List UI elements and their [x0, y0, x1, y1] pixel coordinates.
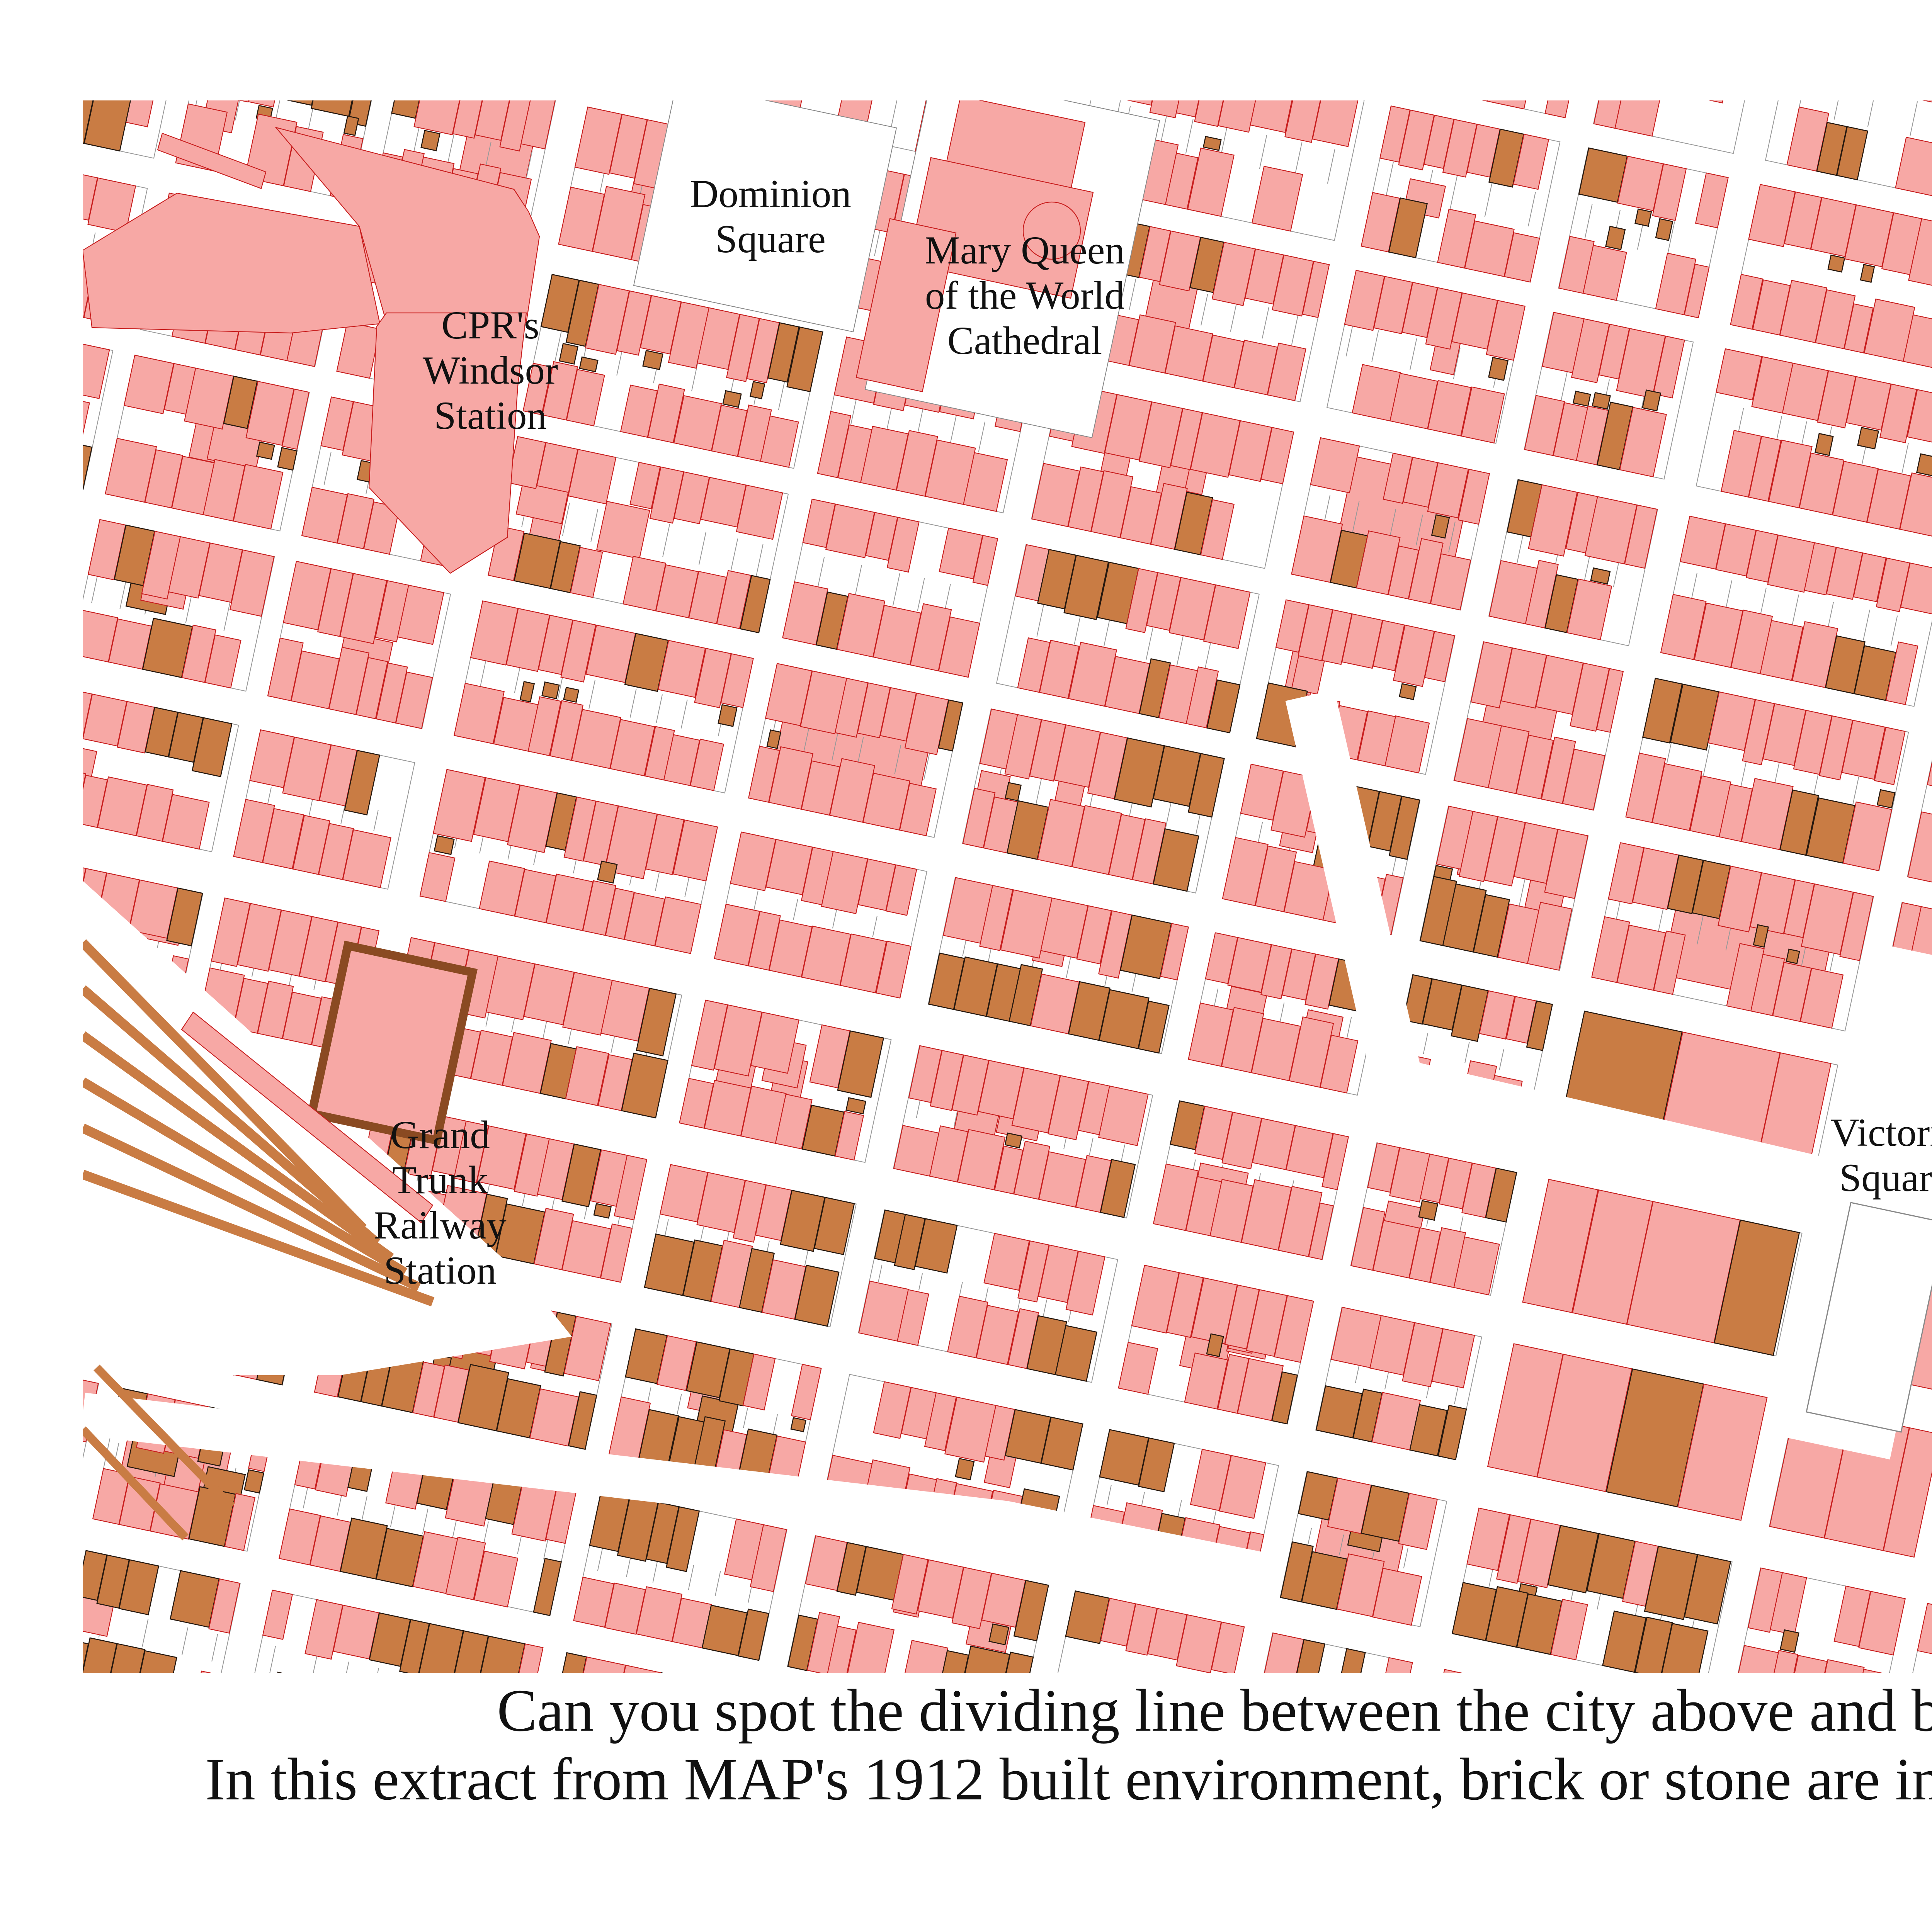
svg-text:Dominion: Dominion — [690, 172, 851, 216]
svg-text:Station: Station — [434, 394, 547, 438]
svg-text:of the World: of the World — [925, 274, 1124, 318]
svg-text:Can you spot the dividing line: Can you spot the dividing line between t… — [497, 1677, 1932, 1744]
svg-text:Station: Station — [384, 1249, 497, 1293]
svg-text:Cathedral: Cathedral — [947, 319, 1102, 363]
svg-text:Trunk: Trunk — [392, 1158, 488, 1202]
svg-text:Windsor: Windsor — [423, 348, 558, 392]
svg-text:Railway: Railway — [374, 1203, 507, 1247]
svg-text:CPR's: CPR's — [441, 303, 539, 347]
svg-text:Square: Square — [715, 217, 826, 261]
svg-text:Square: Square — [1839, 1156, 1932, 1200]
svg-text:In this extract from MAP's 191: In this extract from MAP's 1912 built en… — [205, 1746, 1932, 1813]
svg-text:Grand: Grand — [390, 1113, 490, 1157]
svg-text:Victoria: Victoria — [1830, 1111, 1932, 1155]
svg-text:Mary Queen: Mary Queen — [925, 228, 1125, 272]
